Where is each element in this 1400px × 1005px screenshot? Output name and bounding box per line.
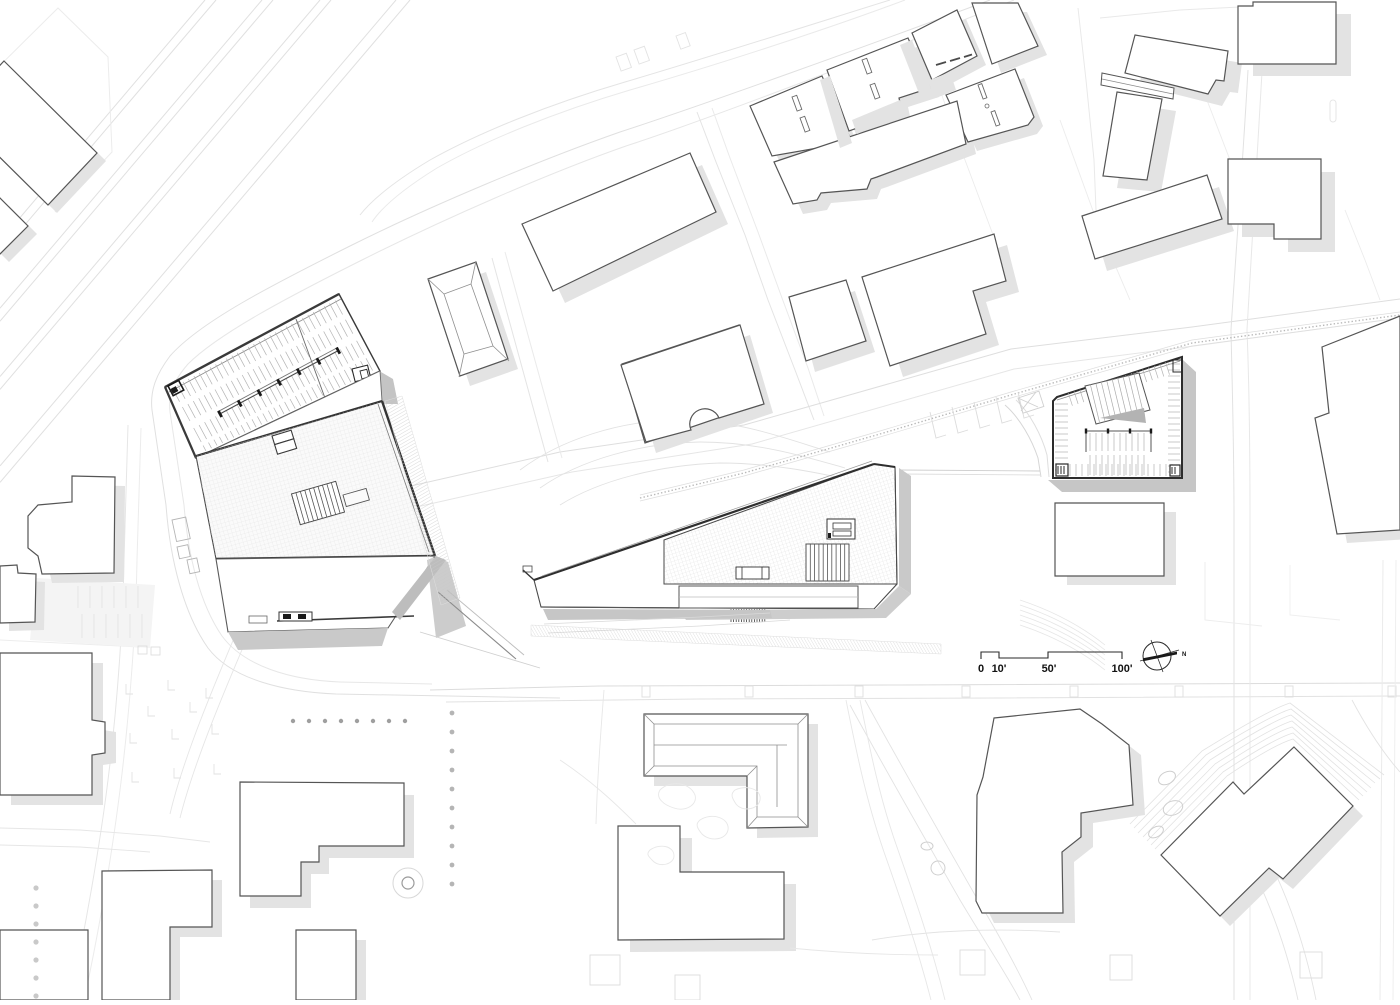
- svg-text:50': 50': [1042, 663, 1057, 675]
- svg-text:100': 100': [1112, 663, 1133, 675]
- svg-text:N: N: [1182, 652, 1186, 658]
- svg-text:10': 10': [992, 663, 1007, 675]
- svg-text:0: 0: [978, 663, 984, 675]
